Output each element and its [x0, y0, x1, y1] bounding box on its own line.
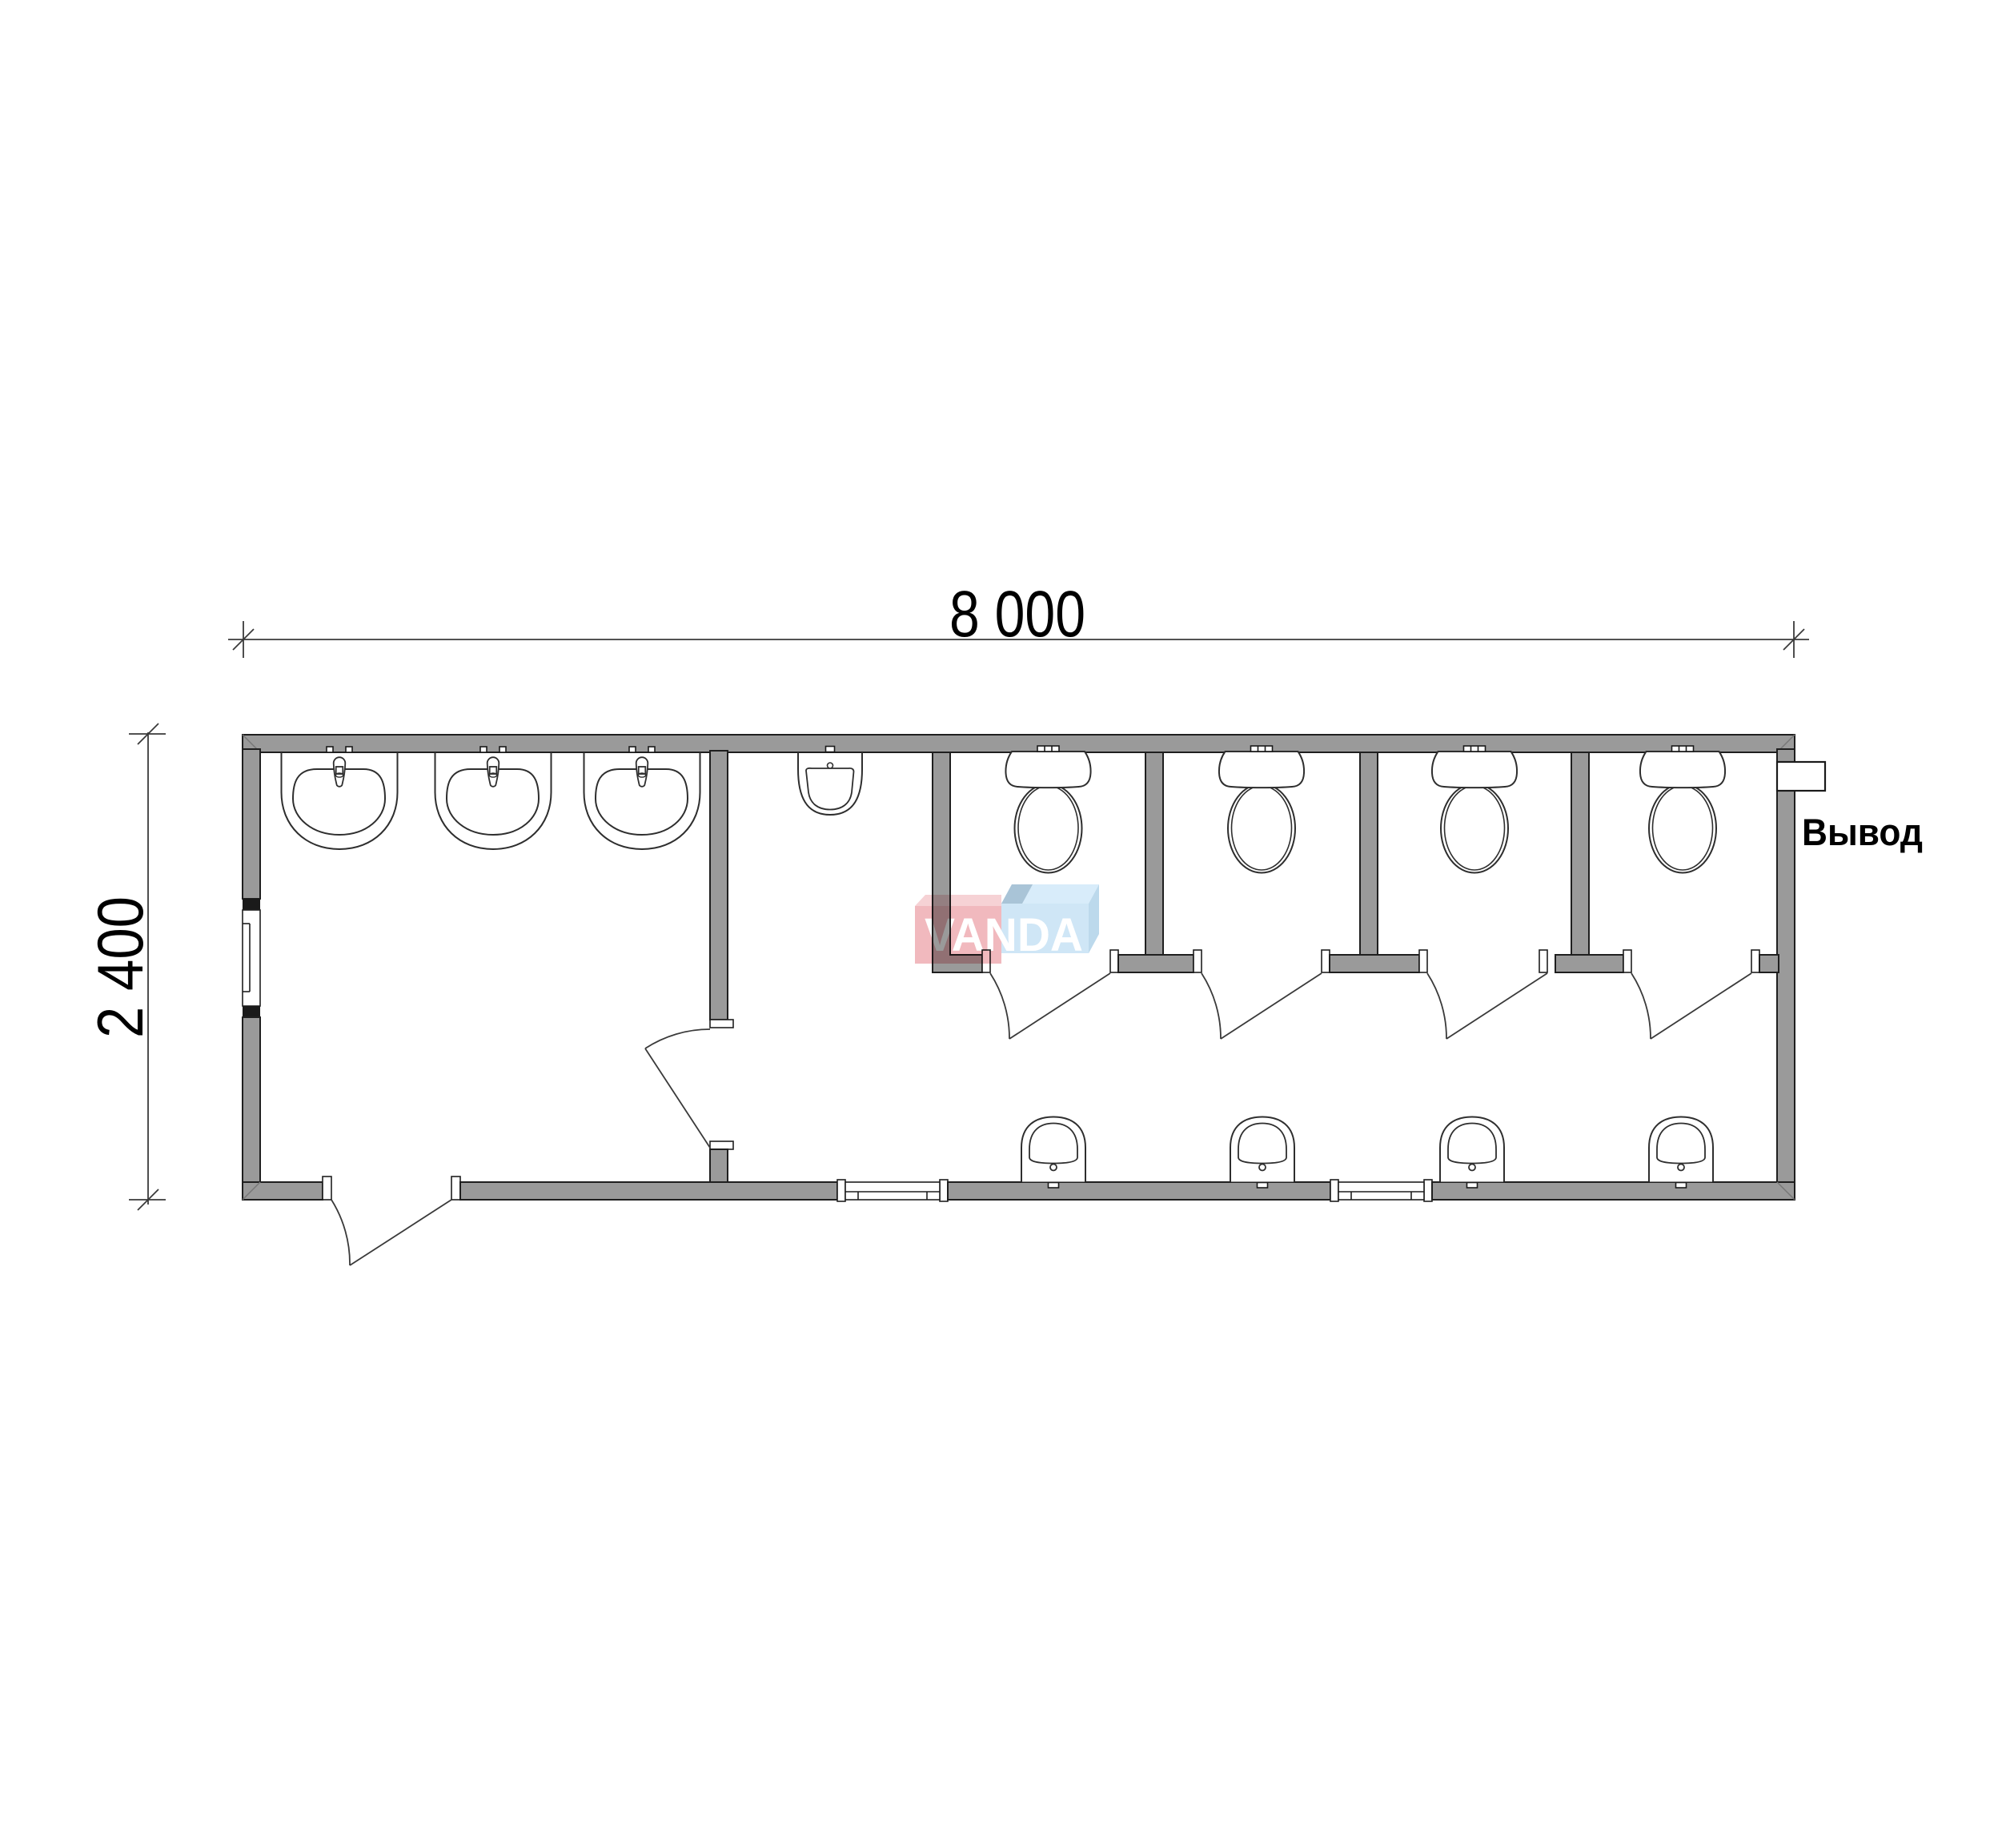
svg-text:Вывод: Вывод: [1802, 811, 1923, 853]
svg-text:2 400: 2 400: [85, 896, 157, 1038]
svg-text:VANDA: VANDA: [925, 909, 1083, 961]
svg-text:8 000: 8 000: [949, 578, 1085, 651]
